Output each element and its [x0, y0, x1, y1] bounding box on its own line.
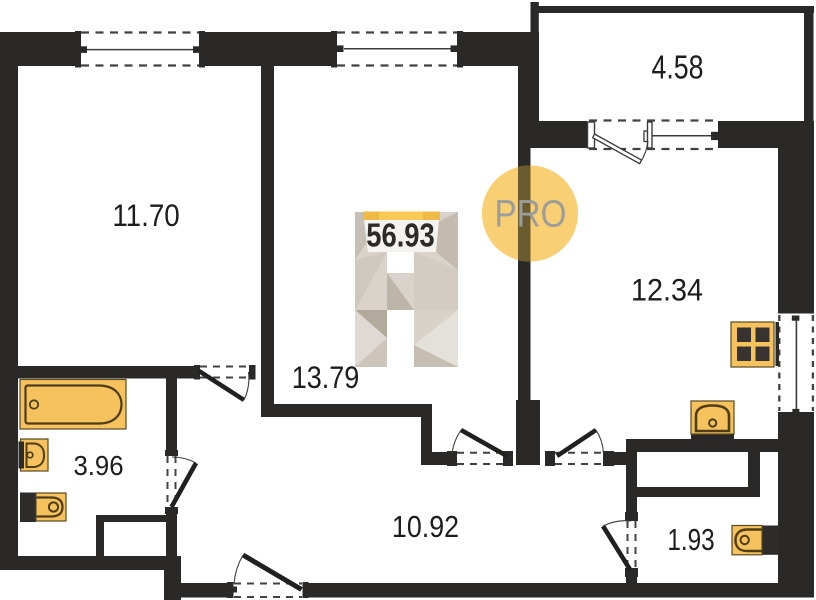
svg-text:13.79: 13.79 — [292, 360, 360, 396]
svg-text:10.92: 10.92 — [392, 510, 459, 544]
svg-text:56.93: 56.93 — [366, 217, 435, 254]
svg-text:11.70: 11.70 — [112, 199, 179, 234]
svg-text:4.58: 4.58 — [651, 50, 703, 86]
svg-text:3.96: 3.96 — [73, 450, 123, 481]
svg-text:12.34: 12.34 — [631, 273, 703, 307]
svg-text:PRO: PRO — [495, 193, 567, 236]
svg-text:1.93: 1.93 — [667, 523, 714, 557]
